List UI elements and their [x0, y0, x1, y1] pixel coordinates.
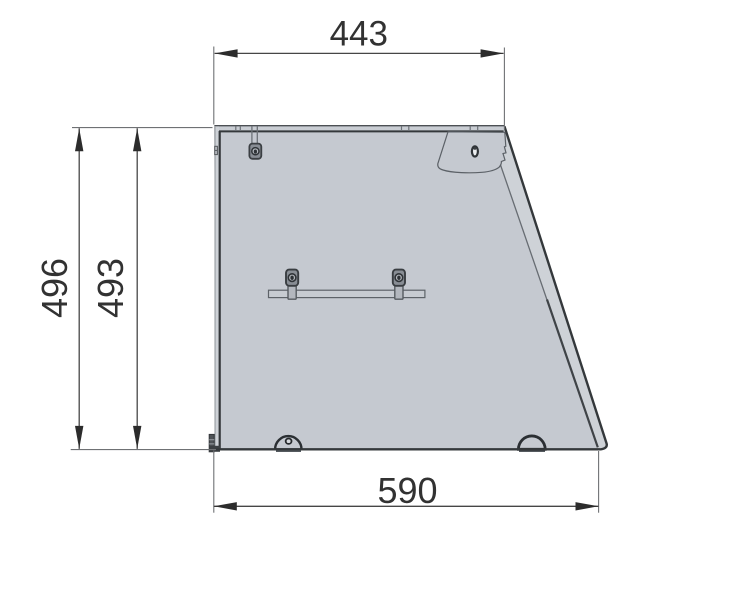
svg-text:496: 496 — [34, 258, 75, 318]
svg-text:443: 443 — [330, 15, 388, 54]
svg-text:590: 590 — [377, 470, 437, 511]
svg-text:493: 493 — [90, 258, 131, 318]
